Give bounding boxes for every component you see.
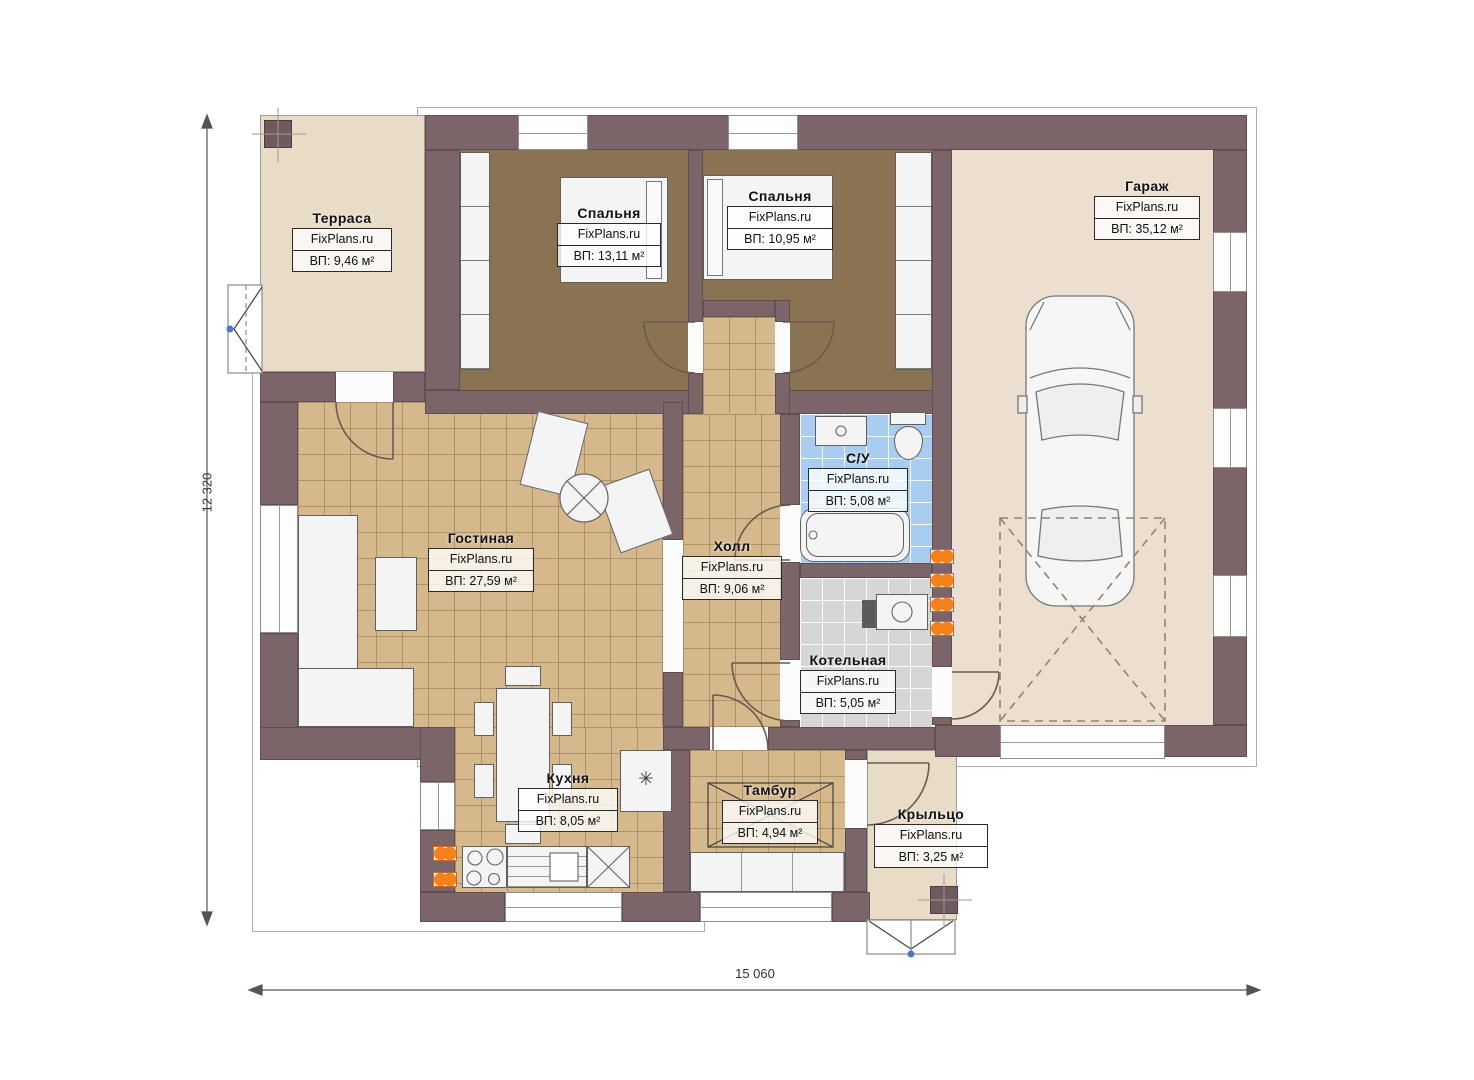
room-area: ВП: 5,08 м² [809, 491, 907, 512]
door-arc [732, 663, 790, 721]
room-name: Спальня [727, 188, 833, 204]
room-label-terrace: Терраса FixPlans.ru ВП: 9,46 м² [292, 210, 392, 272]
watermark: FixPlans.ru [809, 469, 907, 491]
room-label-bedroom2: Спальня FixPlans.ru ВП: 10,95 м² [727, 188, 833, 250]
room-area: ВП: 8,05 м² [519, 811, 617, 832]
room-name: Спальня [557, 205, 661, 221]
room-name: Крыльцо [874, 806, 988, 822]
watermark: FixPlans.ru [683, 557, 781, 579]
watermark: FixPlans.ru [723, 801, 817, 823]
room-label-bathroom: С/У FixPlans.ru ВП: 5,08 м² [808, 450, 908, 512]
room-name: Холл [682, 538, 782, 554]
watermark: FixPlans.ru [293, 229, 391, 251]
watermark: FixPlans.ru [801, 671, 895, 693]
door-arc [783, 322, 834, 373]
door-arc [336, 402, 393, 459]
floor-plan: ✳ [0, 0, 1474, 1080]
sink-cross [467, 847, 629, 887]
room-area: ВП: 5,05 м² [801, 693, 895, 714]
watermark: FixPlans.ru [558, 224, 660, 246]
room-name: Кухня [518, 770, 618, 786]
room-label-kitchen: Кухня FixPlans.ru ВП: 8,05 м² [518, 770, 618, 832]
watermark: FixPlans.ru [1095, 197, 1199, 219]
door-arc [644, 322, 695, 373]
room-name: Котельная [800, 652, 896, 668]
dimension-width-value: 15 060 [735, 966, 775, 981]
room-area: ВП: 13,11 м² [558, 246, 660, 267]
watermark: FixPlans.ru [875, 825, 987, 847]
round-table [560, 474, 608, 522]
room-name: Гараж [1094, 178, 1200, 194]
terrace-steps [227, 285, 263, 373]
porch-steps [867, 920, 955, 958]
room-label-boiler: Котельная FixPlans.ru ВП: 5,05 м² [800, 652, 896, 714]
room-name: С/У [808, 450, 908, 466]
dimension-height: 12 320 [200, 448, 215, 538]
car [1018, 296, 1142, 606]
watermark: FixPlans.ru [429, 549, 533, 571]
room-label-bedroom1: Спальня FixPlans.ru ВП: 13,11 м² [557, 205, 661, 267]
watermark: FixPlans.ru [519, 789, 617, 811]
room-area: ВП: 35,12 м² [1095, 219, 1199, 240]
watermark: FixPlans.ru [728, 207, 832, 229]
room-name: Тамбур [722, 782, 818, 798]
room-label-garage: Гараж FixPlans.ru ВП: 35,12 м² [1094, 178, 1200, 240]
room-name: Терраса [292, 210, 392, 226]
door-arc [713, 695, 768, 750]
room-area: ВП: 10,95 м² [728, 229, 832, 250]
dimension-height-value: 12 320 [200, 473, 215, 513]
room-area: ВП: 27,59 м² [429, 571, 533, 592]
room-area: ВП: 3,25 м² [875, 847, 987, 868]
room-area: ВП: 9,46 м² [293, 251, 391, 272]
room-label-living: Гостиная FixPlans.ru ВП: 27,59 м² [428, 530, 534, 592]
room-label-tambour: Тамбур FixPlans.ru ВП: 4,94 м² [722, 782, 818, 844]
door-arc [952, 672, 999, 719]
room-label-hall: Холл FixPlans.ru ВП: 9,06 м² [682, 538, 782, 600]
room-area: ВП: 4,94 м² [723, 823, 817, 844]
dimension-width: 15 060 [700, 966, 810, 981]
room-area: ВП: 9,06 м² [683, 579, 781, 600]
room-label-porch: Крыльцо FixPlans.ru ВП: 3,25 м² [874, 806, 988, 868]
room-name: Гостиная [428, 530, 534, 546]
